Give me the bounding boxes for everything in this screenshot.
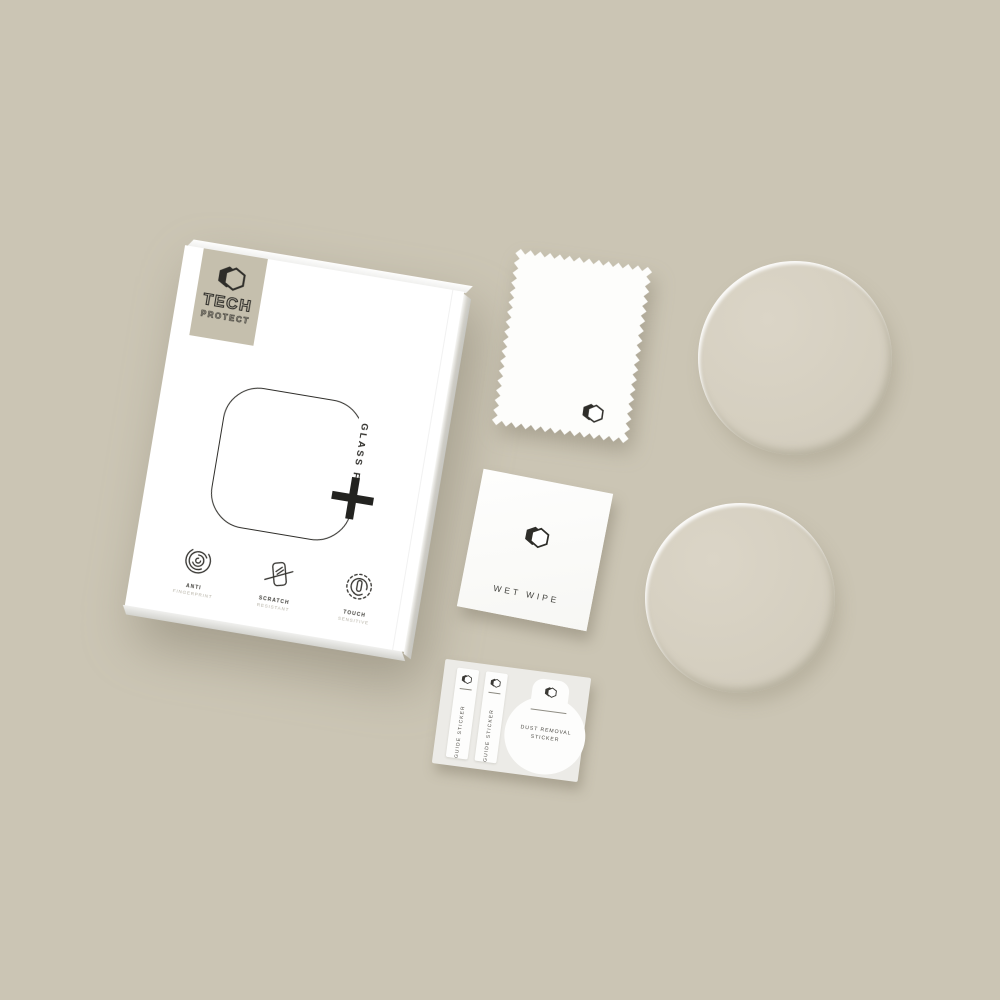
- product-box: TECH PROTECT GLASS FIT ANTI FINGERPRINT: [125, 245, 464, 652]
- feature-anti-fingerprint: ANTI FINGERPRINT: [154, 538, 240, 602]
- brand-badge: TECH PROTECT: [189, 248, 268, 346]
- guide-sticker-label: GUIDE STICKER: [482, 698, 496, 762]
- fingerprint-icon: [180, 542, 217, 579]
- tech-protect-hexagon-icon: [521, 522, 553, 553]
- box-front-face: TECH PROTECT GLASS FIT ANTI FINGERPRINT: [125, 245, 464, 652]
- sticker-sheet: GUIDE STICKER GUIDE STICKER DUST REMOVAL…: [432, 659, 591, 782]
- feature-touch-sensitive: TOUCH SENSITIVE: [315, 565, 401, 629]
- glass-protector-disc-2: [645, 503, 835, 693]
- tech-protect-hexagon-icon: [489, 677, 502, 689]
- divider-line: [488, 692, 500, 695]
- tech-protect-hexagon-icon: [579, 400, 607, 426]
- box-lid-crease: [392, 290, 453, 650]
- wet-wipe-label: WET WIPE: [461, 577, 592, 612]
- tech-protect-hexagon-icon: [460, 673, 473, 685]
- guide-sticker-1: GUIDE STICKER: [446, 667, 480, 759]
- scratch-resistant-icon: [260, 556, 297, 593]
- feature-scratch-resistant: SCRATCH RESISTANT: [234, 552, 320, 616]
- divider-line: [460, 688, 472, 691]
- guide-sticker-label: GUIDE STICKER: [454, 694, 468, 758]
- product-photo-scene: TECH PROTECT GLASS FIT ANTI FINGERPRINT: [0, 0, 1000, 1000]
- watch-screen-outline-graphic: [206, 382, 369, 545]
- wet-wipe-packet: WET WIPE: [457, 469, 613, 632]
- feature-icon-row: ANTI FINGERPRINT SCRATCH RESISTANT: [154, 538, 400, 629]
- guide-sticker-2: GUIDE STICKER: [474, 671, 508, 763]
- tech-protect-hexagon-icon: [213, 261, 250, 296]
- tech-protect-hexagon-icon: [543, 685, 559, 700]
- touch-sensitive-icon: [341, 569, 378, 606]
- glass-protector-disc-1: [698, 261, 892, 455]
- microfiber-cloth: [491, 248, 652, 443]
- microfiber-cloth-wrap: [491, 248, 652, 443]
- dust-removal-sticker: DUST REMOVAL STICKER: [505, 673, 587, 779]
